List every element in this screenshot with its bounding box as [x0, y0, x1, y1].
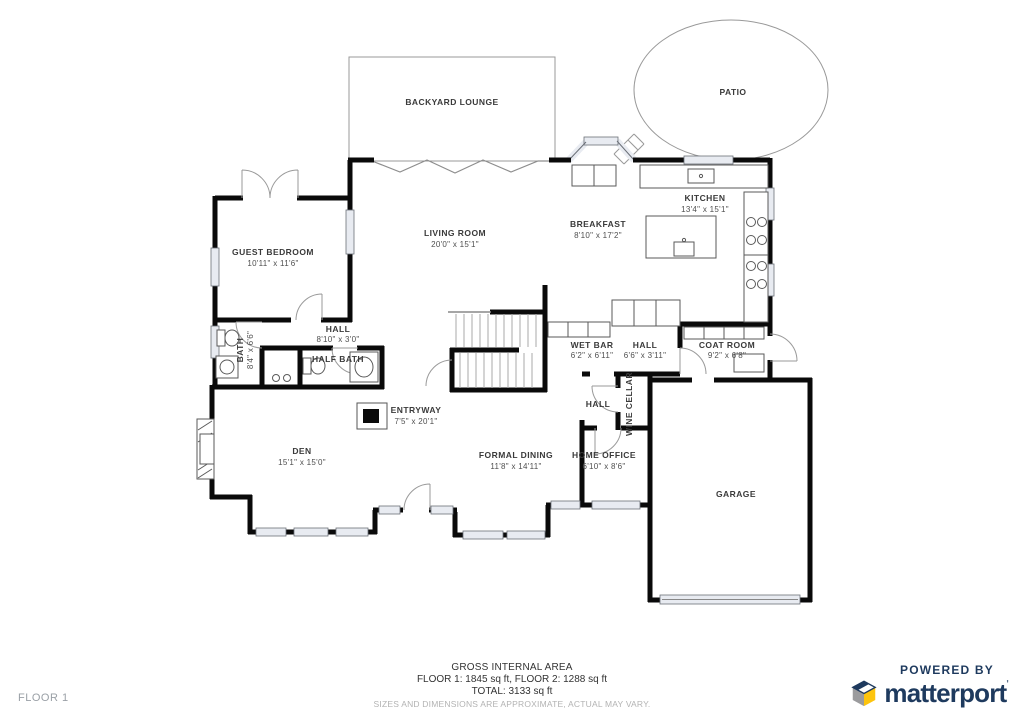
floor-plan-svg: BACKYARD LOUNGE PATIO KITCHEN 13'4" x 15… — [0, 0, 1024, 724]
dims-hall-1: 8'10" x 3'0" — [316, 335, 359, 344]
stair-door — [426, 360, 452, 386]
label-living-room: LIVING ROOM — [424, 228, 486, 238]
wet-bar-counter — [548, 322, 610, 337]
label-home-office: HOME OFFICE — [572, 450, 636, 460]
matterport-cube-icon — [849, 678, 879, 708]
guest-bedroom-door — [296, 294, 322, 320]
hall-cabinets — [612, 300, 680, 326]
label-den: DEN — [292, 446, 311, 456]
kitchen-island — [646, 216, 716, 258]
dims-guest-bedroom: 10'11" x 11'6" — [247, 259, 298, 268]
label-formal-dining: FORMAL DINING — [479, 450, 553, 460]
label-bath: BATH — [235, 338, 245, 363]
label-garage: GARAGE — [716, 489, 756, 499]
label-half-bath: HALF BATH — [312, 354, 364, 364]
bay-window — [569, 137, 634, 160]
powered-by-text: POWERED BY — [900, 663, 994, 677]
label-guest-bedroom: GUEST BEDROOM — [232, 247, 314, 257]
dims-home-office: 6'10" x 8'6" — [582, 462, 625, 471]
dims-entryway: 7'5" x 20'1" — [394, 417, 437, 426]
french-door-left — [242, 170, 270, 198]
fireplace — [197, 419, 214, 479]
dims-wet-bar: 6'2" x 6'11" — [571, 351, 613, 360]
kitchen-counter-top — [572, 165, 768, 188]
label-patio: PATIO — [720, 87, 747, 97]
french-door-right — [270, 170, 298, 198]
coat-room-door — [680, 348, 706, 374]
label-wet-bar: WET BAR — [571, 340, 614, 350]
label-hall-2: HALL — [633, 340, 657, 350]
dims-den: 15'1" x 15'0" — [278, 458, 326, 467]
dims-living-room: 20'0" x 15'1" — [431, 240, 479, 249]
label-wine-cellar: WINE CELLAR — [624, 372, 634, 436]
dims-breakfast: 8'10" x 17'2" — [574, 231, 622, 240]
dims-kitchen: 13'4" x 15'1" — [681, 205, 729, 214]
dims-formal-dining: 11'8" x 14'11" — [490, 462, 541, 471]
kitchen-counter-right — [744, 192, 768, 322]
backyard-lounge-outline — [349, 57, 555, 161]
dims-bath: 8'4" x 6'6" — [246, 331, 255, 369]
closet-fixture — [273, 375, 291, 382]
accordion-door — [372, 160, 551, 173]
label-kitchen: KITCHEN — [685, 193, 726, 203]
label-hall-1: HALL — [326, 324, 350, 334]
label-backyard-lounge: BACKYARD LOUNGE — [405, 97, 498, 107]
floor-label: FLOOR 1 — [18, 692, 69, 704]
label-coat-room: COAT ROOM — [699, 340, 755, 350]
entry-pillar — [357, 403, 387, 429]
label-hall-3: HALL — [586, 399, 610, 409]
porch-door — [404, 484, 430, 510]
matterport-wordmark: matterport' — [884, 680, 1008, 706]
dims-hall-2: 6'6" x 3'11" — [624, 351, 666, 360]
front-door — [770, 334, 797, 361]
stair-treads-upper — [456, 314, 536, 347]
dims-coat-room: 9'2" x 6'8" — [708, 351, 746, 360]
matterport-branding: POWERED BY matterport' — [858, 663, 1008, 708]
stair-treads-lower — [460, 353, 532, 388]
label-breakfast: BREAKFAST — [570, 219, 626, 229]
label-entryway: ENTRYWAY — [391, 405, 442, 415]
garage-door — [660, 595, 800, 604]
trademark-tick: ' — [1006, 679, 1008, 690]
floor-plan-page: BACKYARD LOUNGE PATIO KITCHEN 13'4" x 15… — [0, 0, 1024, 724]
